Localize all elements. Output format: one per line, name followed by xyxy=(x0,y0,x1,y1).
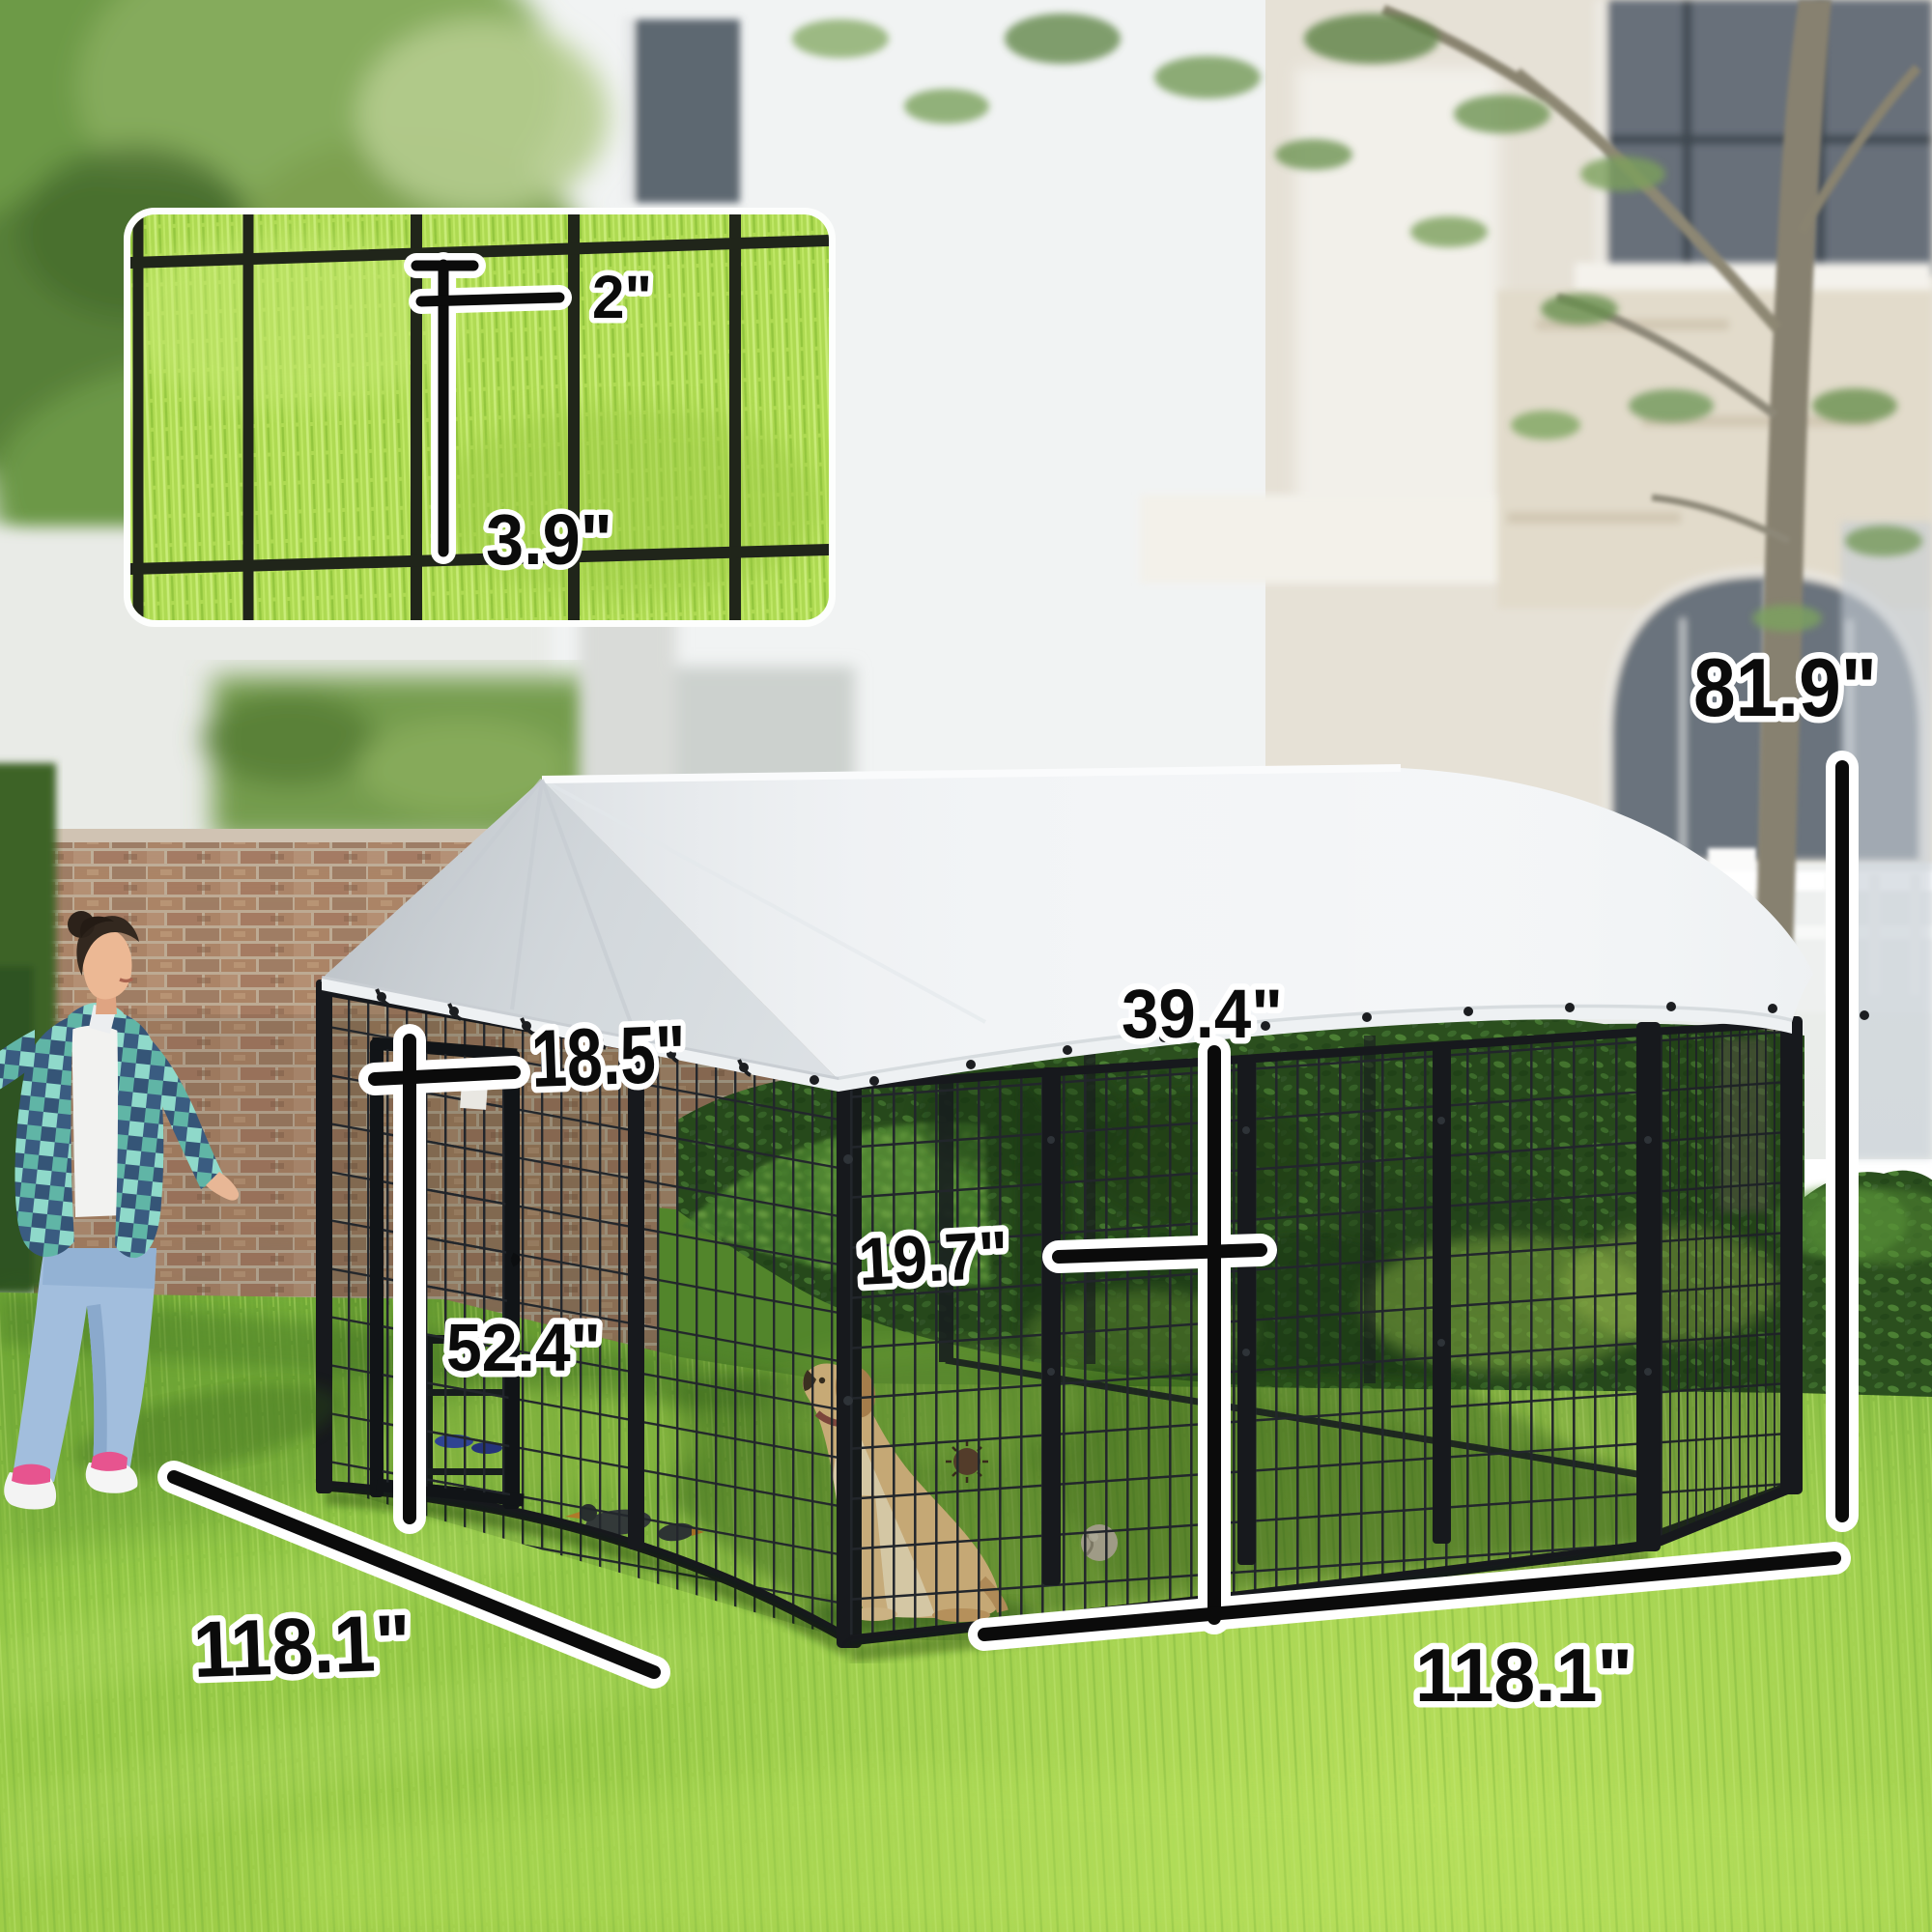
svg-text:3.9": 3.9" xyxy=(486,499,612,580)
svg-text:81.9": 81.9" xyxy=(1693,642,1877,734)
svg-text:118.1": 118.1" xyxy=(191,1599,412,1694)
svg-text:18.5": 18.5" xyxy=(529,1008,687,1104)
svg-text:118.1": 118.1" xyxy=(1415,1633,1633,1718)
svg-text:2": 2" xyxy=(592,264,652,331)
svg-text:39.4": 39.4" xyxy=(1122,977,1283,1053)
svg-text:19.7": 19.7" xyxy=(857,1217,1010,1299)
svg-text:52.4": 52.4" xyxy=(446,1310,601,1385)
